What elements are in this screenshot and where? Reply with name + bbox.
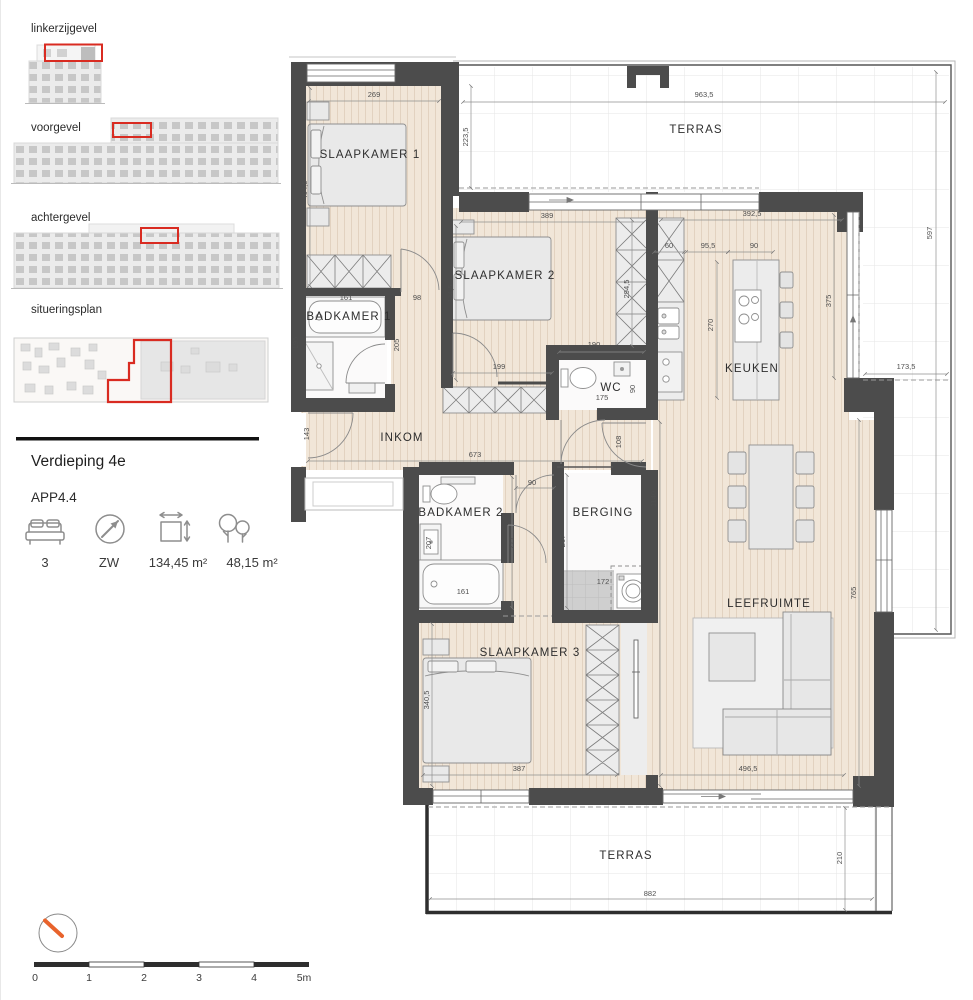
terrace-area-icon bbox=[220, 515, 250, 543]
svg-text:207: 207 bbox=[424, 537, 433, 550]
bedroom-count: 3 bbox=[41, 555, 48, 570]
svg-text:199: 199 bbox=[493, 362, 506, 371]
room-label-keuken: KEUKEN bbox=[725, 363, 779, 375]
room-label-badkamer1: BADKAMER 1 bbox=[306, 311, 391, 323]
elevation-linkerzijgevel bbox=[25, 45, 105, 104]
svg-text:294,5: 294,5 bbox=[622, 280, 631, 299]
svg-text:270: 270 bbox=[706, 319, 715, 332]
svg-text:175: 175 bbox=[596, 393, 609, 402]
sidebar: linkerzijgevel voorgevel achtergevel sit… bbox=[11, 23, 283, 570]
bathtub-badkamer2 bbox=[419, 560, 503, 608]
apartment-id: APP4.4 bbox=[31, 490, 77, 505]
section-label-situeringsplan: situeringsplan bbox=[31, 304, 102, 316]
room-label-slaapkamer3: SLAAPKAMER 3 bbox=[480, 647, 581, 659]
svg-text:3: 3 bbox=[196, 972, 202, 984]
svg-text:597: 597 bbox=[925, 227, 934, 240]
compass-icon bbox=[96, 515, 124, 543]
svg-text:95,5: 95,5 bbox=[701, 241, 716, 250]
svg-text:882: 882 bbox=[644, 889, 657, 898]
room-label-terras-bottom: TERRAS bbox=[599, 850, 652, 862]
room-label-slaapkamer1: SLAAPKAMER 1 bbox=[320, 149, 421, 161]
svg-text:161: 161 bbox=[457, 587, 470, 596]
svg-text:404,5: 404,5 bbox=[300, 181, 309, 200]
svg-text:334,5: 334,5 bbox=[446, 285, 455, 304]
section-label-voorgevel: voorgevel bbox=[31, 122, 81, 134]
svg-text:1: 1 bbox=[86, 972, 92, 984]
svg-text:392,5: 392,5 bbox=[743, 209, 762, 218]
wardrobe-inkom bbox=[443, 387, 547, 413]
svg-text:205: 205 bbox=[392, 339, 401, 352]
svg-text:277: 277 bbox=[507, 537, 516, 550]
svg-text:0: 0 bbox=[32, 972, 38, 984]
bench-badkamer1 bbox=[349, 383, 375, 393]
floorplan-page: linkerzijgevel voorgevel achtergevel sit… bbox=[0, 0, 973, 1000]
compass bbox=[39, 914, 77, 952]
divider bbox=[16, 437, 259, 441]
elevation-achtergevel bbox=[11, 224, 283, 289]
sofa-set bbox=[693, 612, 833, 755]
svg-text:389: 389 bbox=[541, 211, 554, 220]
terrace-area-value: 48,15 m² bbox=[226, 555, 278, 570]
svg-text:90: 90 bbox=[750, 241, 758, 250]
area-icon bbox=[160, 513, 190, 542]
svg-text:375: 375 bbox=[824, 295, 833, 308]
section-label-achtergevel: achtergevel bbox=[31, 212, 90, 224]
svg-text:2: 2 bbox=[141, 972, 147, 984]
compass-needle bbox=[45, 921, 62, 937]
plan-canvas: linkerzijgevel voorgevel achtergevel sit… bbox=[1, 0, 973, 1000]
wardrobe-slaapkamer3 bbox=[586, 625, 619, 775]
svg-text:269: 269 bbox=[368, 90, 381, 99]
svg-text:4: 4 bbox=[251, 972, 257, 984]
dining-table bbox=[728, 445, 814, 549]
room-label-wc: WC bbox=[600, 382, 621, 394]
svg-text:1140: 1140 bbox=[649, 491, 658, 507]
svg-text:172: 172 bbox=[597, 577, 610, 586]
svg-text:195: 195 bbox=[291, 337, 300, 350]
svg-text:387: 387 bbox=[513, 764, 526, 773]
svg-text:143: 143 bbox=[302, 428, 311, 441]
living-area-value: 134,45 m² bbox=[149, 555, 208, 570]
room-label-badkamer2: BADKAMER 2 bbox=[418, 507, 503, 519]
svg-text:90: 90 bbox=[528, 478, 536, 487]
room-label-leefruimte: LEEFRUIMTE bbox=[727, 598, 811, 610]
svg-text:173,5: 173,5 bbox=[897, 362, 916, 371]
room-label-inkom: INKOM bbox=[380, 432, 423, 444]
room-label-slaapkamer2: SLAAPKAMER 2 bbox=[455, 270, 556, 282]
svg-text:340,5: 340,5 bbox=[422, 691, 431, 710]
svg-text:496,5: 496,5 bbox=[739, 764, 758, 773]
svg-text:60: 60 bbox=[665, 241, 673, 250]
svg-text:673: 673 bbox=[469, 450, 482, 459]
shower-badkamer1 bbox=[305, 342, 333, 390]
svg-text:765: 765 bbox=[849, 587, 858, 600]
svg-text:161: 161 bbox=[340, 293, 353, 302]
bed-icon bbox=[26, 520, 64, 544]
svg-text:90: 90 bbox=[628, 385, 637, 393]
siteplan-thumbnail bbox=[14, 338, 268, 402]
svg-text:98: 98 bbox=[413, 293, 421, 302]
svg-text:108: 108 bbox=[614, 436, 623, 449]
svg-text:210: 210 bbox=[835, 852, 844, 865]
svg-text:223,5: 223,5 bbox=[461, 128, 470, 147]
svg-text:5m: 5m bbox=[297, 972, 312, 984]
room-label-berging: BERGING bbox=[573, 507, 634, 519]
room-label-terras-top: TERRAS bbox=[669, 124, 722, 136]
bed-slaapkamer3 bbox=[423, 639, 531, 782]
terrace-bottom-floor bbox=[428, 805, 892, 913]
svg-text:267: 267 bbox=[558, 535, 567, 548]
floor-plan: 269 404,5 223,5 963,5 389 334,5 392,5 60… bbox=[289, 57, 955, 914]
orientation-value: ZW bbox=[99, 555, 120, 570]
shaft-common-area bbox=[305, 478, 403, 510]
wardrobe-slaapkamer1 bbox=[307, 255, 391, 288]
section-label-linkerzijgevel: linkerzijgevel bbox=[31, 23, 97, 35]
scale-bar: 0 1 2 3 4 5m bbox=[32, 962, 311, 984]
svg-text:190: 190 bbox=[588, 340, 601, 349]
svg-text:963,5: 963,5 bbox=[695, 90, 714, 99]
floor-title: Verdieping 4e bbox=[31, 453, 126, 470]
